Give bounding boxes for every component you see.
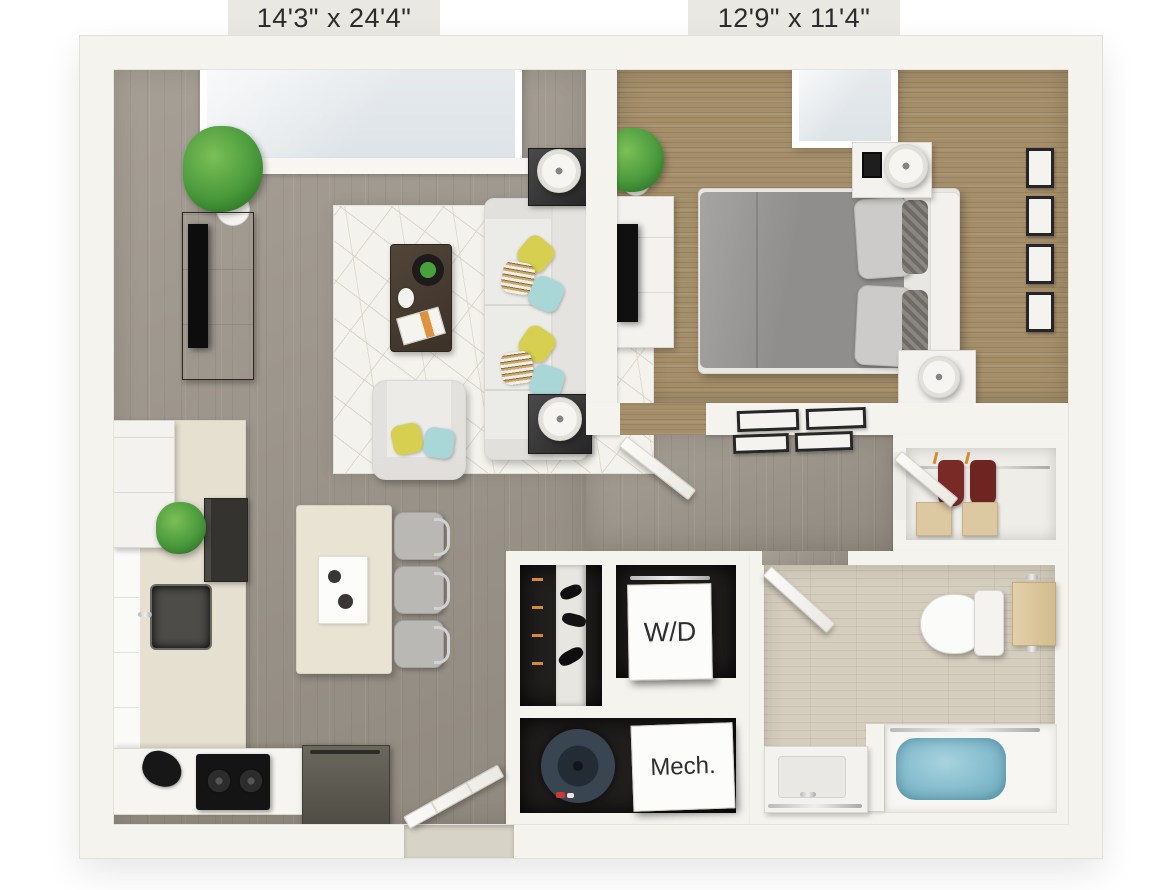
- bedroom-dimensions-label: 12'9" x 11'4": [718, 3, 871, 33]
- entry-doorway: [404, 825, 514, 858]
- living-dimensions-label: 14'3" x 24'4": [257, 3, 412, 33]
- apartment-floor-plan: 14'3" x 24'4" 12'9" x 11'4": [0, 0, 1150, 890]
- exterior-walls: [80, 36, 1102, 858]
